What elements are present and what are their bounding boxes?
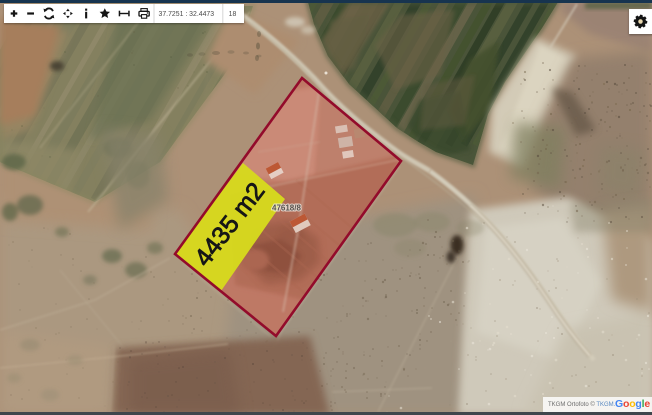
- svg-text:18: 18: [229, 11, 237, 18]
- svg-text:47618/8: 47618/8: [272, 204, 301, 213]
- svg-text:37.7251 : 32.4473: 37.7251 : 32.4473: [159, 11, 215, 18]
